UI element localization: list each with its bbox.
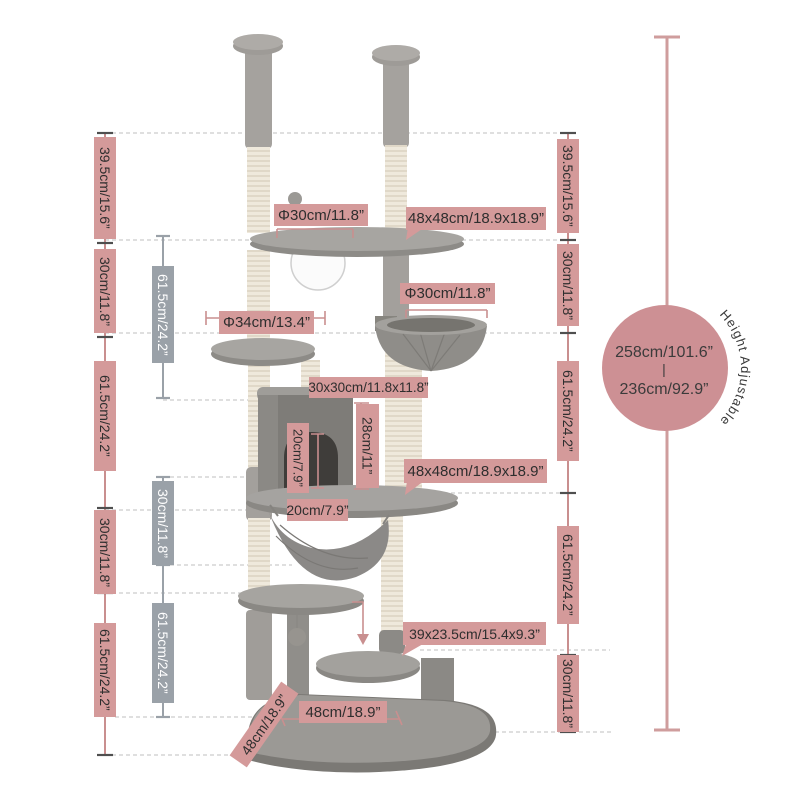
- height-min: 236cm/92.9”: [620, 381, 709, 398]
- dim-house-top: 30x30cm/11.8x11.8”: [309, 377, 428, 398]
- dim-left-outer-2: 30cm/11.8”: [94, 249, 116, 333]
- top-platform: [250, 227, 464, 257]
- height-separator: |: [662, 361, 666, 377]
- dim-left-outer-5: 61.5cm/24.2”: [94, 623, 116, 717]
- dim-top-platform-diameter: Φ30cm/11.8”: [274, 204, 368, 226]
- house-platform: [246, 485, 458, 518]
- dim-step: 39x23.5cm/15.4x9.3”: [403, 622, 546, 645]
- dim-left-inner-1: 61.5cm/24.2”: [152, 266, 174, 363]
- dim-top-frame: 48x48cm/18.9x18.9”: [406, 207, 546, 230]
- dim-house-height: 28cm/11”: [356, 404, 379, 488]
- mid-platform: [238, 584, 364, 615]
- product-dimension-diagram: 258cm/101.6” | 236cm/92.9” Height Adjust…: [0, 0, 800, 800]
- dim-basket-diameter: Φ30cm/11.8”: [400, 283, 495, 304]
- pom-ball: [288, 628, 306, 646]
- dim-left-outer-4: 30cm/11.8”: [94, 510, 116, 594]
- dim-left-inner-3: 61.5cm/24.2”: [152, 603, 174, 703]
- dim-left-outer-3: 61.5cm/24.2”: [94, 361, 116, 471]
- dim-door-height: 20cm/7.9”: [287, 423, 309, 493]
- height-max: 258cm/101.6”: [615, 344, 713, 361]
- dim-left-outer-1: 39.5cm/15.6”: [94, 137, 116, 239]
- elbow-arrowhead: [357, 634, 369, 645]
- cat-tree-illustration: [211, 34, 496, 772]
- step-platform: [316, 651, 420, 683]
- dim-right-1: 39.5cm/15.6”: [557, 139, 579, 233]
- dim-right-4: 61.5cm/24.2”: [557, 526, 579, 624]
- dim-left-inner-2: 30cm/11.8”: [152, 481, 174, 565]
- height-badge: 258cm/101.6” | 236cm/92.9” Height Adjust…: [602, 301, 753, 435]
- dim-round-platform-diameter: Φ34cm/13.4”: [219, 311, 314, 334]
- dim-house-depth: 20cm/7.9”: [287, 499, 348, 521]
- diagram-artwork: 258cm/101.6” | 236cm/92.9” Height Adjust…: [0, 0, 800, 800]
- dim-right-3: 61.5cm/24.2”: [557, 361, 579, 461]
- dim-right-2: 30cm/11.8”: [557, 244, 579, 326]
- dim-base-width: 48cm/18.9”: [299, 701, 387, 723]
- round-platform: [211, 338, 315, 366]
- label-tail-step: [402, 644, 423, 656]
- mid-column: [287, 610, 309, 700]
- dim-right-5: 30cm/11.8”: [557, 655, 579, 732]
- dim-mid-frame: 48x48cm/18.9x18.9”: [404, 459, 547, 483]
